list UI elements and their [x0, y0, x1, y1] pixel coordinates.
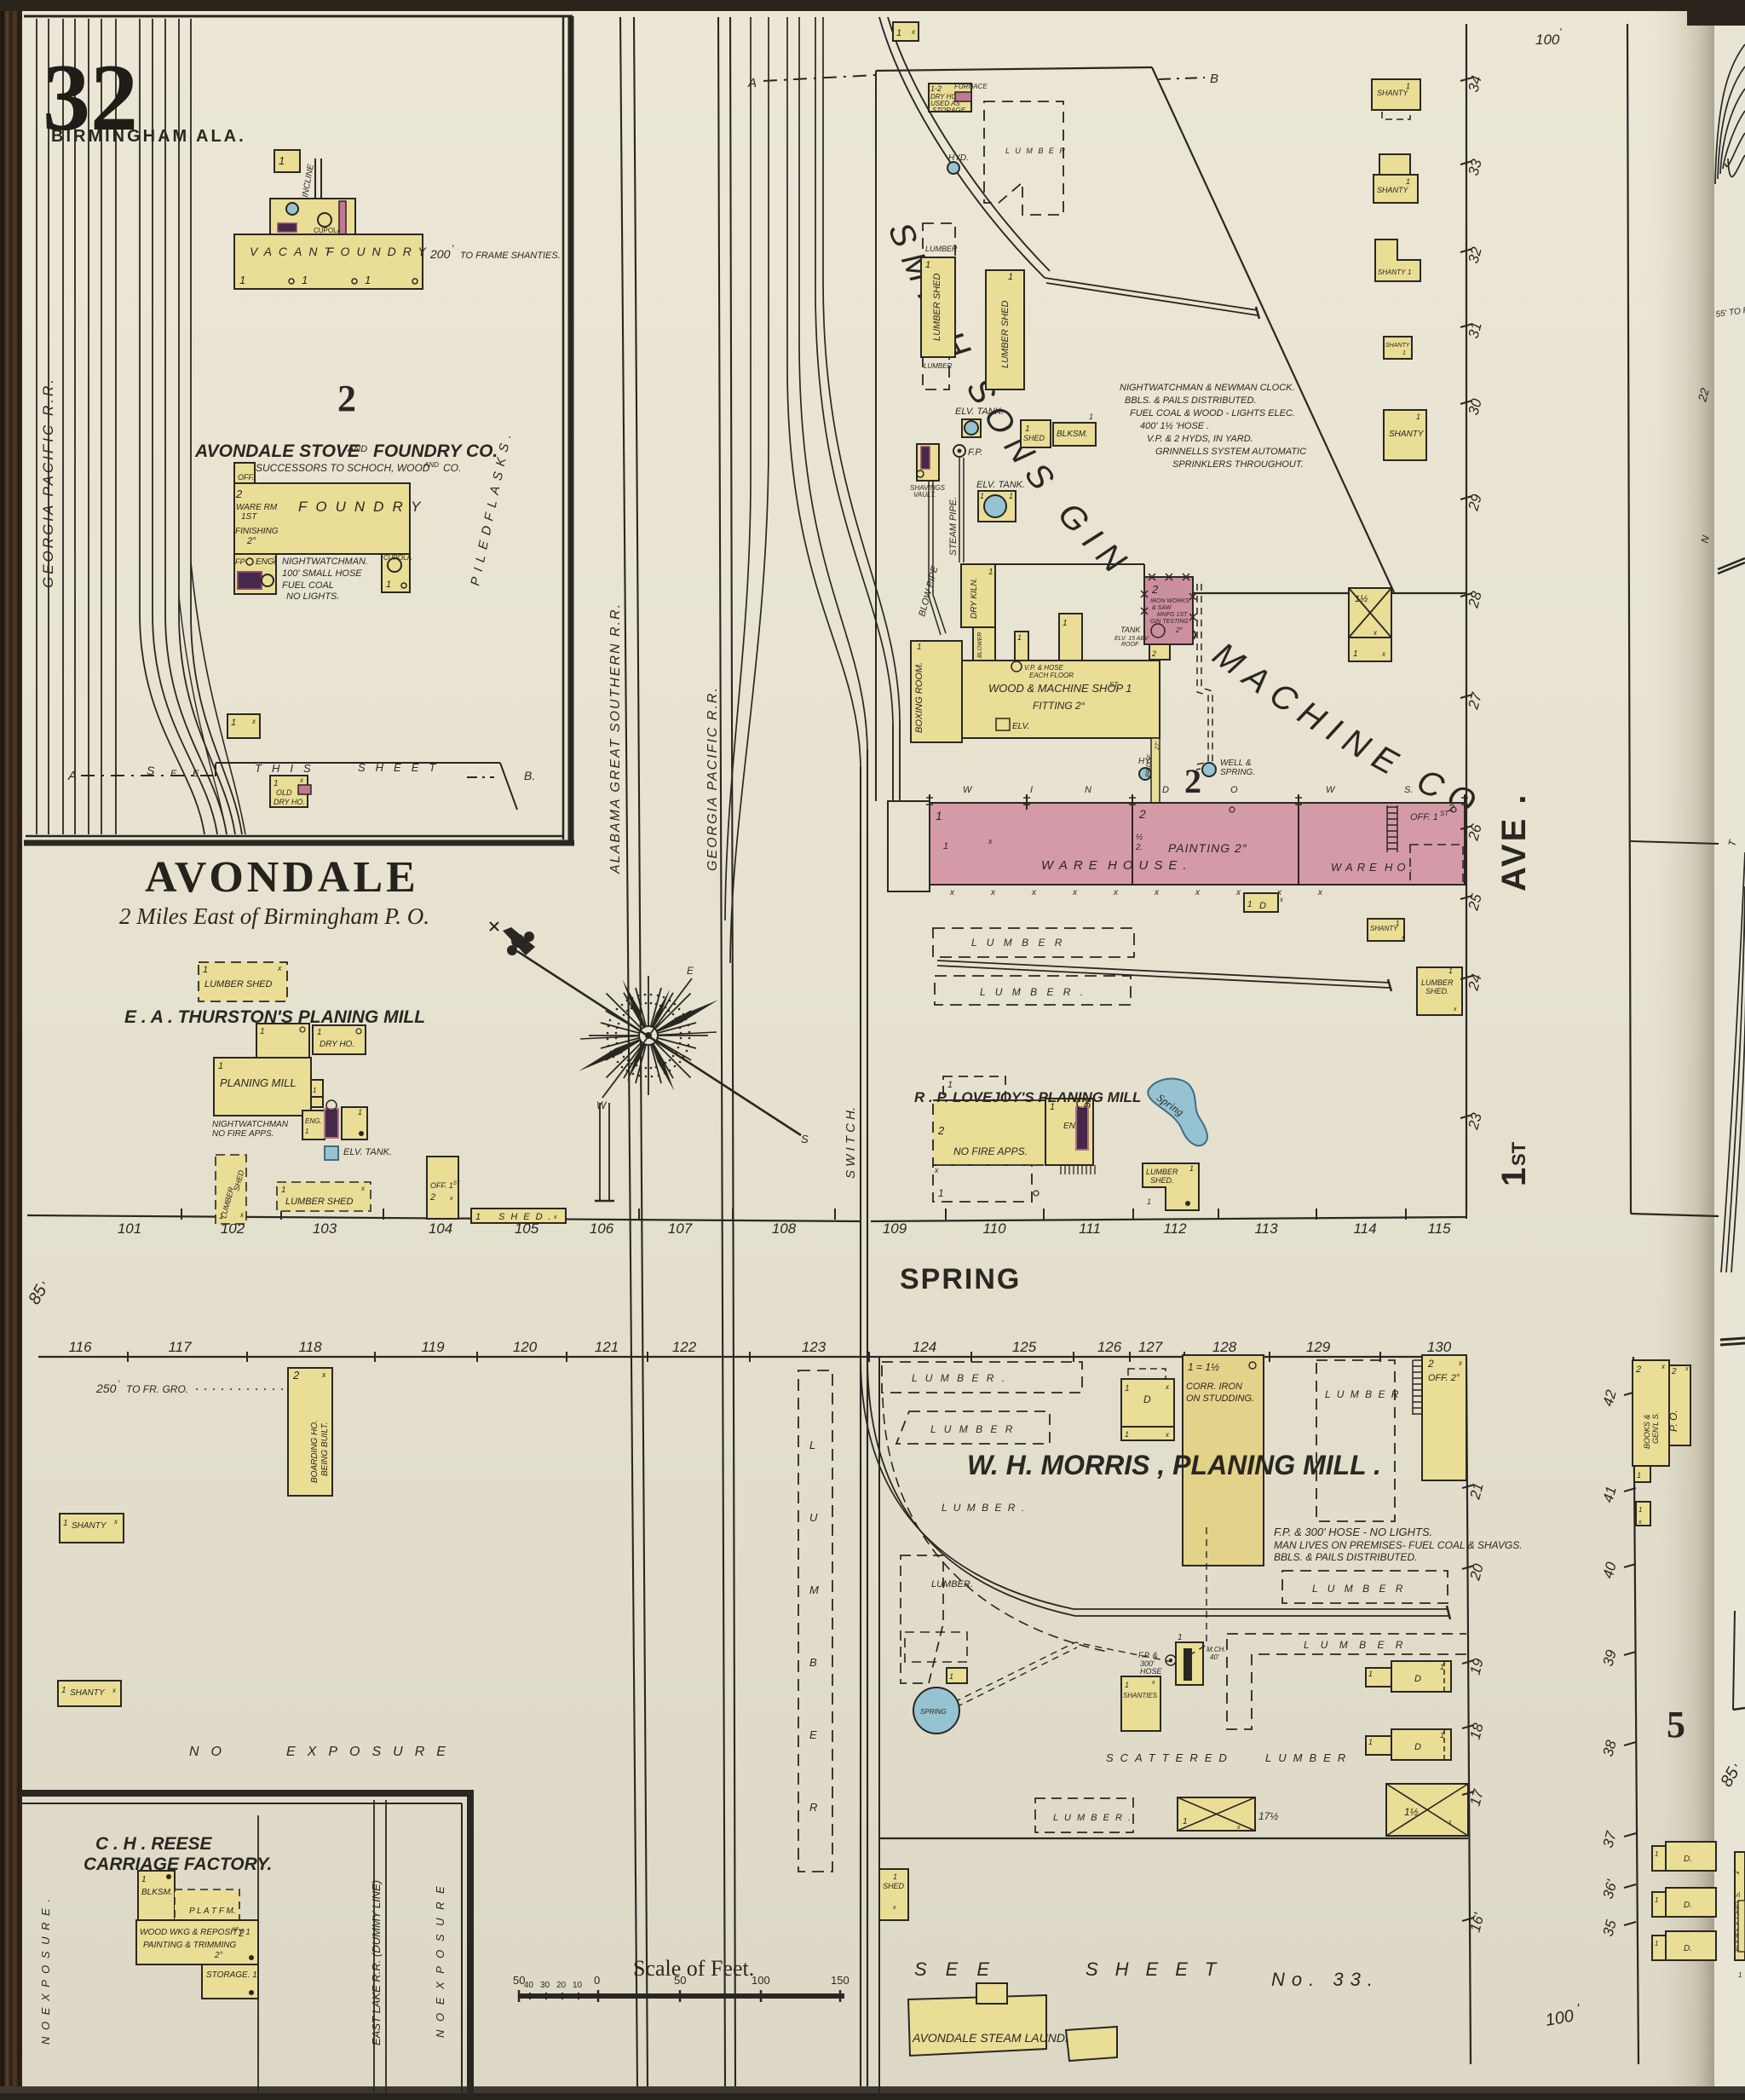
svg-text:A: A: [67, 769, 77, 783]
svg-text:SHED.: SHED.: [498, 1212, 557, 1222]
svg-text:5: 5: [1667, 1704, 1685, 1745]
svg-text:CO.: CO.: [443, 462, 461, 474]
svg-text:1: 1: [274, 779, 279, 788]
svg-text:1: 1: [358, 1108, 362, 1116]
svg-text:126: 126: [1097, 1339, 1122, 1355]
svg-text:ON STUDDING.: ON STUDDING.: [1186, 1393, 1254, 1404]
svg-text:1: 1: [1655, 1940, 1658, 1947]
svg-text:1: 1: [1638, 1506, 1642, 1514]
svg-text:1: 1: [317, 1028, 322, 1037]
svg-text:CORR. IRON: CORR. IRON: [1186, 1382, 1242, 1392]
svg-text:R: R: [809, 1801, 817, 1814]
svg-text:ALABAMA GREAT SOUTHERN R.R: ALABAMA GREAT SOUTHERN R.R.: [608, 603, 623, 874]
svg-text:L U M B E R .: L U M B E R .: [942, 1502, 1026, 1514]
svg-text:1: 1: [1416, 412, 1420, 421]
svg-text:F.P. & 300' HOSE - NO LIG: F.P. & 300' HOSE - NO LIGHTS.: [1274, 1526, 1432, 1538]
svg-text:1: 1: [1495, 1168, 1533, 1186]
svg-text:W: W: [1326, 785, 1336, 795]
svg-text:1: 1: [141, 1875, 147, 1884]
svg-text:CARRIAGE FACTORY.: CARRIAGE FACTORY.: [84, 1855, 272, 1874]
svg-text:LUMBER SHED: LUMBER SHED: [932, 273, 942, 341]
svg-text:1: 1: [63, 1519, 68, 1528]
svg-text:PLANING MILL: PLANING MILL: [220, 1076, 297, 1089]
svg-text:BOOKS &: BOOKS &: [1643, 1414, 1651, 1449]
svg-text:L U M B E R .: L U M B E R .: [980, 986, 1086, 998]
svg-text:2.: 2.: [1135, 843, 1143, 852]
svg-text:20: 20: [556, 1981, 567, 1990]
svg-text:LUMBER: LUMBER: [924, 362, 953, 370]
svg-text:STORAGE: STORAGE: [932, 107, 966, 114]
svg-text:121: 121: [595, 1339, 619, 1355]
svg-text:SHANTY: SHANTY: [1385, 343, 1411, 349]
svg-text:x: x: [949, 888, 955, 897]
svg-text:NIGHTWATCHMAN.: NIGHTWATCHMAN.: [282, 557, 368, 567]
svg-text:1: 1: [1396, 920, 1399, 927]
svg-text:O: O: [1230, 785, 1238, 795]
svg-text:I: I: [1030, 785, 1033, 795]
svg-text:x: x: [1638, 1520, 1642, 1526]
svg-text:LUMBER: LUMBER: [925, 245, 958, 253]
svg-text:111: 111: [1079, 1220, 1101, 1237]
svg-text:AND: AND: [423, 461, 439, 469]
svg-text:SHANTY: SHANTY: [1378, 268, 1406, 276]
svg-text:STEAM PIPE.: STEAM PIPE.: [948, 497, 959, 556]
svg-text:½: ½: [1136, 833, 1143, 842]
svg-text:ELV. TANK.: ELV. TANK.: [976, 480, 1025, 490]
svg-text:1: 1: [1125, 1430, 1129, 1439]
svg-text:BOXING ROOM.: BOXING ROOM.: [914, 662, 924, 733]
svg-text:OFF.: OFF.: [238, 473, 254, 482]
svg-text:DRY HO.: DRY HO.: [320, 1040, 354, 1049]
svg-text:108: 108: [772, 1220, 797, 1237]
svg-text:Scale of Feet.: Scale of Feet.: [633, 1956, 754, 1981]
svg-text:1: 1: [365, 274, 371, 286]
svg-text:LUMBER: LUMBER: [1421, 978, 1454, 987]
svg-text:x: x: [321, 1370, 326, 1379]
svg-text:EXPOSURE: EXPOSURE: [286, 1745, 458, 1759]
svg-text:BLKSM.: BLKSM.: [141, 1888, 173, 1897]
svg-text:E: E: [170, 769, 177, 779]
svg-text:V.P. & 2 HYDS, IN YARD.: V.P. & 2 HYDS, IN YARD.: [1147, 434, 1253, 444]
svg-text:SHED: SHED: [883, 1882, 905, 1890]
svg-text:100' SMALL HOSE: 100' SMALL HOSE: [282, 568, 362, 579]
svg-text:OFF. 1: OFF. 1: [430, 1181, 453, 1190]
svg-text:1: 1: [313, 1087, 316, 1094]
svg-text:MNFG 1ST: MNFG 1ST: [1157, 612, 1188, 618]
svg-text:ENG.: ENG.: [305, 1117, 322, 1125]
svg-text:M: M: [809, 1584, 819, 1596]
svg-text:N O E X P O S U R E: N O E X P O S U R E: [434, 1884, 446, 2038]
svg-text:B: B: [1210, 72, 1218, 86]
svg-text:E: E: [809, 1728, 817, 1741]
svg-text:1: 1: [1406, 82, 1410, 90]
svg-text:TO FR. GRO.: TO FR. GRO.: [126, 1383, 188, 1395]
svg-text:No. 33.: No. 33.: [1271, 1969, 1379, 1990]
svg-text:1: 1: [1402, 350, 1406, 356]
svg-text:2: 2: [429, 1192, 435, 1203]
svg-text:1: 1: [938, 1187, 944, 1199]
svg-text:200: 200: [429, 247, 451, 261]
svg-text:117: 117: [168, 1339, 192, 1355]
svg-text:1: 1: [231, 718, 236, 728]
svg-text:HO.: HO.: [1385, 861, 1417, 874]
svg-text:OLD: OLD: [276, 788, 292, 797]
svg-text:C . H . REESE: C . H . REESE: [95, 1834, 213, 1854]
svg-text:1: 1: [302, 274, 308, 286]
svg-text:2: 2: [1635, 1364, 1641, 1375]
svg-text:L: L: [809, 1439, 815, 1451]
svg-text:D.: D.: [1684, 1944, 1692, 1953]
svg-text:2: 2: [1427, 1358, 1434, 1370]
svg-text:FP: FP: [235, 557, 245, 566]
svg-text:1: 1: [1655, 1850, 1658, 1858]
svg-text:x: x: [1154, 888, 1160, 897]
svg-text:OFF. 2°: OFF. 2°: [1428, 1373, 1460, 1383]
svg-text:D: D: [1162, 785, 1169, 795]
svg-text:L U M B E R: L U M B E R: [930, 1423, 1015, 1435]
svg-text:GEN'L S.: GEN'L S.: [1651, 1412, 1660, 1444]
svg-text:x: x: [1031, 888, 1037, 897]
svg-text:DRY KILN.: DRY KILN.: [970, 578, 979, 619]
svg-text:FOUNDRY: FOUNDRY: [298, 499, 429, 515]
svg-text:AVONDALE: AVONDALE: [145, 853, 419, 902]
svg-text:150: 150: [831, 1974, 849, 1987]
svg-text:40: 40: [524, 1981, 534, 1990]
svg-text:1: 1: [1125, 1384, 1130, 1393]
svg-text:ELV. TANK.: ELV. TANK.: [343, 1147, 392, 1157]
svg-text:1: 1: [917, 643, 922, 652]
svg-text:V.P. & HOSE: V.P. & HOSE: [1024, 664, 1064, 672]
svg-text:L U M B E R: L U M B E R: [1325, 1388, 1400, 1400]
svg-text:FURNACE: FURNACE: [954, 83, 988, 90]
svg-text:1: 1: [936, 809, 942, 822]
svg-text:ELV.: ELV.: [1012, 722, 1029, 731]
svg-text:2 Miles East of Birmingham: 2 Miles East of Birmingham P. O.: [119, 903, 429, 929]
svg-text:WELL &: WELL &: [1220, 759, 1252, 768]
svg-text:27': 27': [1155, 741, 1161, 751]
svg-text:123: 123: [802, 1339, 826, 1355]
svg-text:1: 1: [386, 580, 391, 590]
svg-text:1: 1: [1147, 1197, 1151, 1206]
svg-text:FOUNDRY: FOUNDRY: [326, 245, 433, 258]
svg-text:HOSE: HOSE: [1140, 1667, 1163, 1676]
svg-text:TO FRAME SHANTIES.: TO FRAME SHANTIES.: [460, 251, 561, 261]
svg-text:GEORGIA PACIFIC R.R.: GEORGIA PACIFIC R.R.: [705, 686, 720, 871]
svg-text:L U M B E R .: L U M B E R .: [912, 1372, 1007, 1384]
svg-text:LUMBER SHED: LUMBER SHED: [1000, 300, 1011, 368]
svg-text:2: 2: [1138, 807, 1146, 821]
svg-text:x: x: [1113, 888, 1119, 897]
svg-text:R . P. LOVEJOY'S PLANING MILL: R . P. LOVEJOY'S PLANING MILL: [914, 1089, 1141, 1105]
svg-text:1: 1: [980, 492, 984, 500]
svg-text:P. O.: P. O.: [1667, 1410, 1679, 1432]
svg-text:1: 1: [925, 260, 930, 270]
svg-text:AVONDALE STOVE: AVONDALE STOVE: [194, 441, 360, 461]
svg-text:130: 130: [1427, 1339, 1452, 1355]
svg-text:W: W: [596, 1099, 608, 1111]
svg-text:FITTING 2°: FITTING 2°: [1033, 700, 1086, 712]
svg-text:x: x: [988, 837, 993, 845]
svg-text:A: A: [747, 76, 757, 90]
svg-text:1½: 1½: [1404, 1806, 1419, 1818]
svg-text:SPRING.: SPRING.: [1220, 768, 1255, 777]
svg-text:1: 1: [61, 1686, 66, 1695]
svg-text:LUMBER.: LUMBER.: [931, 1579, 973, 1589]
svg-text:x: x: [277, 964, 282, 972]
svg-text:FUEL COAL: FUEL COAL: [282, 580, 334, 591]
svg-text:x: x: [553, 1214, 557, 1220]
svg-text:1: 1: [1353, 649, 1358, 659]
svg-text:128: 128: [1212, 1339, 1237, 1355]
svg-text:L U M B E R: L U M B E R: [971, 937, 1065, 949]
svg-text:SHANTY: SHANTY: [70, 1688, 106, 1698]
svg-text:SPRINKLERS THROUGHOUT.: SPRINKLERS THROUGHOUT.: [1172, 459, 1304, 470]
svg-text:STORAGE. 1: STORAGE. 1: [206, 1970, 257, 1980]
svg-text:x: x: [1195, 888, 1201, 897]
svg-text:PAINTING 2°: PAINTING 2°: [1168, 841, 1247, 855]
svg-text:LUMBER: LUMBER: [1146, 1168, 1178, 1176]
svg-text:2: 2: [292, 1369, 300, 1382]
svg-text:124: 124: [913, 1339, 936, 1355]
svg-text:2: 2: [238, 1927, 245, 1939]
svg-text:AND: AND: [347, 444, 367, 454]
svg-text:250: 250: [95, 1382, 117, 1395]
svg-text:x: x: [1317, 888, 1323, 897]
svg-text:1: 1: [1125, 1681, 1129, 1689]
svg-text:x: x: [1072, 888, 1078, 897]
svg-text:1: 1: [475, 1212, 481, 1222]
svg-text:N: N: [1085, 785, 1091, 795]
svg-text:D: D: [1414, 1742, 1421, 1752]
svg-text:x: x: [1453, 1007, 1457, 1012]
svg-text:101: 101: [118, 1220, 141, 1237]
svg-text:x: x: [934, 1166, 939, 1174]
svg-text:2: 2: [235, 487, 243, 500]
svg-text:400' 1½ 'HOSE .: 400' 1½ 'HOSE .: [1140, 421, 1209, 431]
svg-text:SPRING: SPRING: [900, 1263, 1021, 1295]
svg-text:NIGHTWATCHMAN: NIGHTWATCHMAN: [212, 1120, 289, 1129]
svg-text:1: 1: [218, 1061, 223, 1071]
svg-text:LUMBER: LUMBER: [1265, 1751, 1352, 1764]
svg-text:112: 112: [1163, 1220, 1187, 1237]
svg-text:VACANT: VACANT: [250, 245, 338, 258]
svg-text:2: 2: [1151, 583, 1159, 596]
svg-text:SHANTY: SHANTY: [72, 1521, 107, 1531]
svg-text:17½: 17½: [1258, 1810, 1278, 1822]
svg-text:122: 122: [672, 1339, 697, 1355]
svg-text:D: D: [1259, 901, 1266, 911]
svg-text:1: 1: [896, 28, 901, 38]
svg-text:x: x: [1236, 1825, 1241, 1831]
svg-text:S: S: [801, 1133, 809, 1145]
svg-text:WARE RM: WARE RM: [236, 503, 278, 512]
svg-text:WARE: WARE: [1041, 858, 1103, 873]
svg-text:NO: NO: [189, 1745, 233, 1759]
svg-text:CUPOLA: CUPOLA: [314, 227, 343, 234]
svg-text:& SAW: & SAW: [1152, 605, 1172, 611]
svg-text:ELV. 15 ABV: ELV. 15 ABV: [1114, 636, 1149, 642]
svg-text:WARE: WARE: [1331, 861, 1381, 874]
svg-text:BLOWER: BLOWER: [977, 632, 983, 658]
svg-text:2°: 2°: [214, 1951, 223, 1960]
svg-text:110: 110: [982, 1220, 1006, 1237]
svg-text:129: 129: [1306, 1339, 1331, 1355]
svg-text:1: 1: [281, 1186, 286, 1195]
svg-text:119: 119: [421, 1339, 445, 1355]
svg-text:BLKSM.: BLKSM.: [1057, 430, 1088, 439]
svg-text:NO LIGHTS.: NO LIGHTS.: [286, 591, 339, 602]
svg-text:IRON WORKS: IRON WORKS: [1150, 598, 1189, 604]
svg-text:1: 1: [1440, 1731, 1444, 1739]
svg-text:E: E: [193, 769, 199, 779]
svg-text:W: W: [963, 785, 973, 795]
svg-text:2: 2: [1184, 762, 1201, 800]
svg-text:AVE .: AVE .: [1495, 792, 1533, 891]
svg-text:W. H. MORRIS , PLANING MILL: W. H. MORRIS , PLANING MILL .: [967, 1450, 1381, 1480]
svg-text:OFF. 1: OFF. 1: [1410, 812, 1438, 822]
svg-text:SPRING: SPRING: [920, 1708, 947, 1716]
svg-text:40': 40': [1210, 1653, 1219, 1661]
svg-text:EACH FLOOR: EACH FLOOR: [1029, 672, 1074, 679]
svg-text:U: U: [809, 1511, 818, 1524]
svg-text:115: 115: [1427, 1220, 1451, 1237]
svg-text:1: 1: [1009, 492, 1013, 500]
svg-text:B.: B.: [524, 769, 535, 782]
svg-text:P L A T F M.: P L A T F M.: [189, 1907, 236, 1916]
svg-text:30: 30: [540, 1981, 550, 1990]
svg-text:1½: 1½: [1355, 594, 1368, 604]
svg-text:x: x: [1401, 935, 1405, 941]
svg-text:103: 103: [313, 1220, 337, 1237]
svg-text:SHEET: SHEET: [1086, 1959, 1233, 1980]
svg-text:1: 1: [1189, 1164, 1194, 1173]
svg-text:FUEL COAL & WOOD - LIGHTS ELEC: FUEL COAL & WOOD - LIGHTS ELEC.: [1130, 408, 1295, 418]
svg-text:L U M B E R: L U M B E R: [1312, 1583, 1406, 1595]
svg-text:1: 1: [1655, 1896, 1658, 1904]
svg-text:LUMBER SHED: LUMBER SHED: [204, 979, 273, 989]
svg-text:1: 1: [1408, 268, 1411, 276]
svg-text:1: 1: [273, 556, 278, 565]
svg-text:0: 0: [594, 1974, 600, 1987]
svg-text:SHEET: SHEET: [358, 761, 446, 774]
svg-text:L U M B E R: L U M B E R: [1005, 147, 1067, 155]
svg-text:1ST: 1ST: [241, 512, 257, 522]
svg-text:SUCCESSORS TO SCHOCH, WOOD: SUCCESSORS TO SCHOCH, WOOD: [256, 462, 430, 474]
svg-text:F.P.: F.P.: [968, 447, 982, 458]
svg-text:SCATTERED: SCATTERED: [1106, 1751, 1234, 1764]
svg-text:1: 1: [239, 274, 245, 286]
svg-text:1: 1: [1089, 412, 1093, 421]
svg-text:113: 113: [1254, 1220, 1278, 1237]
svg-text:SEE: SEE: [914, 1959, 1008, 1980]
svg-text:2: 2: [1671, 1367, 1677, 1376]
svg-text:1: 1: [1440, 1663, 1444, 1671]
svg-text:1: 1: [1183, 1817, 1188, 1826]
svg-text:BOARDING HO.: BOARDING HO.: [310, 1420, 320, 1483]
svg-text:S.: S.: [1404, 785, 1413, 795]
svg-text:1: 1: [1008, 272, 1013, 282]
svg-text:NIGHTWATCHMAN & NEWMAN CLOCK.: NIGHTWATCHMAN & NEWMAN CLOCK.: [1120, 383, 1295, 393]
svg-text:10: 10: [573, 1981, 583, 1990]
svg-text:109: 109: [883, 1220, 907, 1237]
svg-text:1: 1: [1247, 900, 1253, 909]
svg-text:ROOF: ROOF: [1121, 642, 1139, 648]
svg-text:2°: 2°: [1175, 626, 1183, 634]
svg-text:GRINNELLS SYSTEM AUTOMATIC: GRINNELLS SYSTEM AUTOMATIC: [1155, 447, 1306, 457]
svg-text:M.CH.: M.CH.: [1207, 1646, 1226, 1653]
svg-text:SHANTY: SHANTY: [1370, 925, 1398, 932]
svg-text:1: 1: [943, 841, 948, 851]
svg-text:100: 100: [752, 1974, 770, 1987]
svg-text:127: 127: [1138, 1339, 1163, 1355]
svg-text:DRY HO.: DRY HO.: [274, 798, 305, 806]
svg-text:106: 106: [590, 1220, 614, 1237]
svg-text:SHED.: SHED.: [1150, 1176, 1174, 1185]
svg-text:SHED: SHED: [1023, 434, 1045, 442]
svg-text:1: 1: [1025, 424, 1030, 434]
svg-text:1: 1: [279, 154, 285, 167]
svg-text:1: 1: [1178, 1633, 1183, 1642]
svg-text:D.: D.: [1684, 1855, 1692, 1864]
svg-text:AVONDALE STEAM LAUNDRY: AVONDALE STEAM LAUNDRY: [912, 2031, 1083, 2045]
svg-text:S W I T C H.: S W I T C H.: [844, 1107, 858, 1179]
svg-text:L U M B E R: L U M B E R: [1304, 1639, 1407, 1651]
svg-text:SHANTY: SHANTY: [1377, 186, 1409, 194]
svg-text:FINISHING: FINISHING: [235, 527, 279, 536]
svg-text:EAST LAKE R.R. (DUMMY LINE): EAST LAKE R.R. (DUMMY LINE): [370, 1880, 383, 2045]
svg-text:1: 1: [988, 568, 993, 577]
svg-text:1: 1: [1637, 1471, 1641, 1480]
svg-text:x: x: [990, 888, 996, 897]
svg-text:1: 1: [305, 1128, 308, 1135]
svg-text:BBLS. & PAILS DISTRIBUTED.: BBLS. & PAILS DISTRIBUTED.: [1125, 395, 1256, 406]
svg-text:D.: D.: [1684, 1901, 1692, 1910]
svg-text:S: S: [147, 764, 155, 777]
svg-text:TANK: TANK: [1120, 626, 1141, 634]
svg-text:114: 114: [1353, 1220, 1376, 1237]
svg-text:1: 1: [1368, 1738, 1373, 1746]
svg-text:LUMBER SHED: LUMBER SHED: [285, 1197, 354, 1207]
svg-text:118: 118: [298, 1339, 322, 1355]
svg-text:ST: ST: [1109, 681, 1119, 689]
svg-text:1: 1: [893, 1872, 897, 1881]
svg-text:ST: ST: [1508, 1141, 1529, 1166]
svg-text:1: 1: [1448, 966, 1453, 975]
svg-text:SHANTY: SHANTY: [1377, 89, 1409, 97]
svg-text:NO FIRE APPS.: NO FIRE APPS.: [953, 1145, 1028, 1157]
svg-text:120: 120: [513, 1339, 538, 1355]
svg-text:HYD.: HYD.: [948, 153, 969, 163]
svg-text:ST: ST: [453, 1181, 461, 1186]
svg-text:NO FIRE APPS.: NO FIRE APPS.: [212, 1129, 274, 1139]
svg-text:2: 2: [337, 378, 356, 419]
svg-text:E: E: [687, 965, 694, 977]
svg-text:1: 1: [203, 965, 208, 975]
svg-text:PAINTING & TRIMMING: PAINTING & TRIMMING: [143, 1941, 236, 1950]
svg-text:116: 116: [68, 1339, 92, 1355]
svg-text:BBLS. & PAILS DISTRIBUTED.: BBLS. & PAILS DISTRIBUTED.: [1274, 1551, 1418, 1563]
svg-text:1-2: 1-2: [930, 84, 942, 93]
svg-text:SHED.: SHED.: [1425, 987, 1449, 995]
svg-text:HOUSE.: HOUSE.: [1108, 858, 1193, 873]
svg-text:2: 2: [1151, 649, 1156, 658]
svg-text:x: x: [1151, 1680, 1155, 1686]
svg-text:ELV. TANK.: ELV. TANK.: [955, 407, 1004, 417]
svg-text:SHANTIES: SHANTIES: [1123, 1692, 1158, 1699]
svg-text:1: 1: [1368, 1670, 1373, 1678]
svg-text:BEING BUILT.: BEING BUILT.: [320, 1422, 330, 1476]
svg-text:x: x: [892, 1905, 896, 1911]
